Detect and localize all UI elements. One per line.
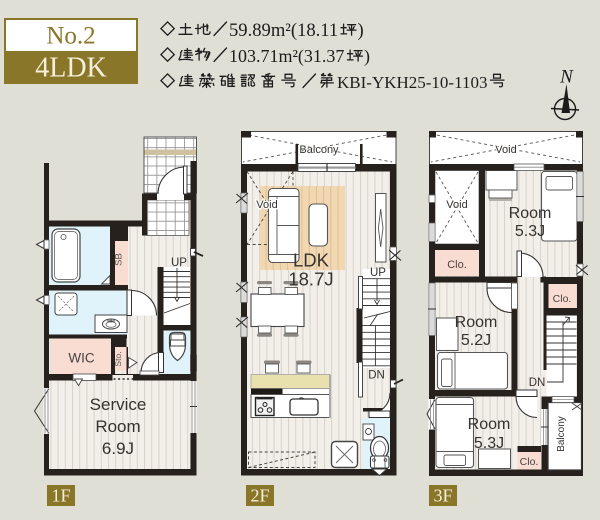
svg-text:N: N — [559, 67, 574, 88]
svg-text:18.7J: 18.7J — [288, 269, 333, 290]
svg-text:KBI-YKH25-10-1103: KBI-YKH25-10-1103 — [337, 73, 487, 92]
svg-text:1F: 1F — [51, 486, 70, 506]
svg-text:Void: Void — [446, 199, 467, 211]
svg-text:Clo.: Clo. — [553, 293, 572, 305]
svg-text:DN: DN — [529, 377, 546, 389]
svg-text:Room: Room — [455, 314, 498, 331]
svg-text:Clo.: Clo. — [447, 259, 467, 271]
svg-text:LDK: LDK — [293, 250, 330, 271]
svg-text:UP: UP — [171, 257, 187, 269]
svg-text:): ) — [364, 46, 370, 67]
svg-text:Clo.: Clo. — [520, 456, 539, 468]
svg-text:Room: Room — [468, 416, 511, 433]
svg-text:2F: 2F — [250, 486, 269, 506]
svg-text:Balcony: Balcony — [299, 144, 339, 156]
svg-text:UP: UP — [370, 267, 386, 279]
svg-text:): ) — [358, 20, 364, 41]
svg-text:Void: Void — [495, 144, 516, 156]
svg-text:DN: DN — [368, 370, 385, 382]
svg-text:Service: Service — [90, 395, 147, 414]
svg-text:3F: 3F — [433, 486, 452, 506]
svg-text:SB: SB — [114, 253, 125, 266]
svg-text:WIC: WIC — [68, 351, 94, 366]
svg-text:Void: Void — [256, 199, 277, 211]
svg-text:Room: Room — [509, 205, 552, 222]
svg-text:5.3J: 5.3J — [474, 435, 504, 452]
svg-text:Balcony: Balcony — [556, 416, 567, 452]
svg-text:59.89m²(18.11: 59.89m²(18.11 — [229, 20, 338, 41]
svg-text:Room: Room — [95, 417, 140, 436]
svg-text:No.2: No.2 — [46, 23, 95, 50]
svg-text:103.71m²(31.37: 103.71m²(31.37 — [229, 46, 344, 67]
svg-text:6.9J: 6.9J — [102, 439, 134, 458]
svg-text:4LDK: 4LDK — [35, 53, 107, 84]
svg-text:5.2J: 5.2J — [461, 332, 491, 349]
svg-text:5.3J: 5.3J — [515, 223, 545, 240]
